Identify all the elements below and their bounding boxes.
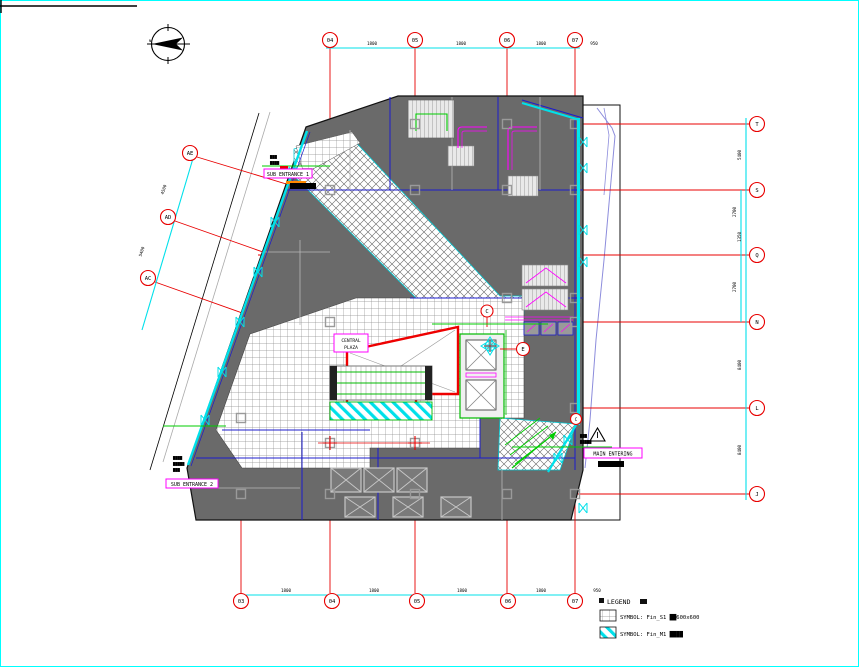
note-main-line2: ▇▇▇▇▇ bbox=[579, 439, 592, 444]
elevator-core bbox=[460, 330, 506, 418]
legend-bullet-icon bbox=[599, 598, 604, 603]
grid-bubble-bottom-05: 05 bbox=[414, 599, 421, 605]
north-arrow-icon: N bbox=[147, 24, 190, 64]
note-sub1-line1: ▇▇▇ bbox=[269, 154, 278, 159]
dim-left-1: 4500 bbox=[160, 184, 168, 196]
grid-bubble-left-ad: AD bbox=[165, 215, 172, 221]
main-entering-label: MAIN ENTERING bbox=[593, 452, 632, 458]
bubble-c-label: C bbox=[485, 309, 488, 315]
dim-top-1: 1800 bbox=[367, 41, 378, 46]
grid-bubble-right-n: N bbox=[755, 320, 758, 326]
dim-bottom-2: 1800 bbox=[369, 588, 380, 593]
grid-bubble-bottom-07: 07 bbox=[572, 599, 579, 605]
grid-bubbles-bottom bbox=[234, 594, 583, 609]
sub-entrance-1-label: SUB ENTRANCE 1 bbox=[267, 172, 309, 178]
legend-title-cjk-blob bbox=[640, 599, 647, 604]
dim-right-2: 2700 bbox=[732, 206, 737, 217]
dim-top-2: 1800 bbox=[456, 41, 467, 46]
grid-bubble-top-06: 06 bbox=[504, 38, 511, 44]
dim-bottom-1: 1800 bbox=[281, 588, 292, 593]
central-plaza-label-2: PLAZA bbox=[344, 345, 358, 351]
legend-swatch-fin-s1 bbox=[600, 610, 616, 621]
dim-right-4: 2700 bbox=[732, 281, 737, 292]
cad-drawing: N 04 05 06 07 180 bbox=[0, 0, 859, 667]
legend-title: LEGEND bbox=[607, 598, 631, 606]
sub-entrance-2-label: SUB ENTRANCE 2 bbox=[171, 482, 213, 488]
note-sub1-line2: ▇▇▇▇ bbox=[269, 160, 280, 165]
grid-bubble-bottom-06: 06 bbox=[505, 599, 512, 605]
dim-bottom-3: 1800 bbox=[457, 588, 468, 593]
legend-item-fin-s1: SYMBOL: Fin_S1 ██600x600 bbox=[620, 613, 699, 621]
grid-bubble-bottom-04: 04 bbox=[329, 599, 336, 605]
grid-bubbles-right bbox=[750, 117, 765, 502]
note-main-line1: ▇▇▇ bbox=[579, 433, 588, 438]
dim-right-6: 8400 bbox=[737, 444, 742, 455]
grid-bubble-right-j: J bbox=[755, 492, 758, 498]
dim-bottom-5: 950 bbox=[593, 588, 601, 593]
escalator-bank bbox=[330, 366, 432, 400]
grid-bubble-top-04: 04 bbox=[327, 38, 334, 44]
legend-swatch-fin-m1 bbox=[600, 627, 616, 638]
grid-bubble-top-07: 07 bbox=[572, 38, 579, 44]
dim-top-3: 1800 bbox=[536, 41, 547, 46]
grid-bubble-right-q: Q bbox=[755, 253, 758, 259]
grid-bubble-left-ac: AC bbox=[145, 276, 152, 282]
note-sub2-line2: ▇▇▇▇▇ bbox=[172, 461, 185, 466]
bubble-e-label: E bbox=[521, 347, 524, 353]
central-plaza-label-1: CENTRAL bbox=[341, 338, 361, 344]
note-sub2-line3: ▇▇▇ bbox=[172, 467, 181, 472]
dim-right-3: 1350 bbox=[737, 231, 742, 242]
walkway-fin-m1 bbox=[330, 402, 432, 420]
grid-bubble-left-ae: AE bbox=[187, 151, 194, 157]
legend-item-fin-m1: SYMBOL: Fin_M1 ████ bbox=[620, 630, 684, 638]
dim-right-5: 8400 bbox=[737, 359, 742, 370]
dim-left-2: 5400 bbox=[138, 246, 146, 258]
grid-bubble-bottom-03: 03 bbox=[238, 599, 245, 605]
dim-right-1: 5400 bbox=[737, 149, 742, 160]
hazard-triangle-icon bbox=[590, 428, 605, 441]
grid-bubble-top-05: 05 bbox=[412, 38, 419, 44]
grid-bubble-right-s: S bbox=[755, 188, 758, 194]
note-sub2-line1: ▇▇▇▇ bbox=[172, 455, 183, 460]
bubble-c2-label: C bbox=[575, 417, 578, 423]
dim-bottom-4: 1800 bbox=[536, 588, 547, 593]
cad-viewport: N 04 05 06 07 180 bbox=[0, 0, 859, 667]
dim-top-4: 950 bbox=[590, 41, 598, 46]
